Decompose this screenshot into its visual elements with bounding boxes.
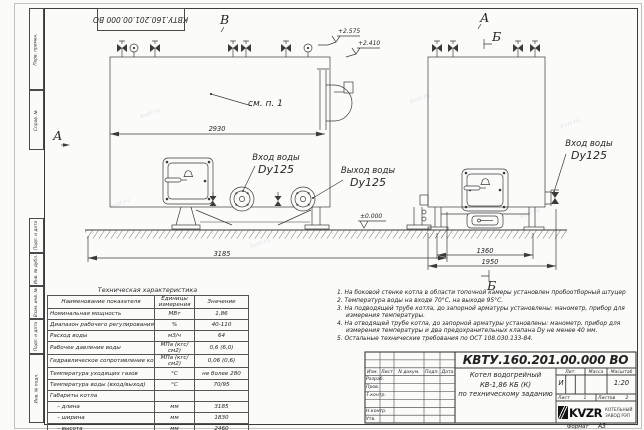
- titleblock-lit-value: И: [556, 379, 566, 387]
- kvzr-logo-icon: [558, 406, 568, 419]
- water-inlet-label-front: Вход воды Dy125: [558, 140, 620, 161]
- dim-3185: 3185: [200, 250, 244, 258]
- company-name: KVZR: [569, 406, 602, 420]
- titleblock-scale-value: 1:20: [607, 379, 636, 387]
- spec-row: Габариты котла: [48, 390, 249, 401]
- spec-header-name: Наименование показателя: [48, 296, 155, 309]
- titleblock-sheet-label: Лист: [558, 395, 574, 402]
- titleblock-header-izm: Изм.: [365, 369, 380, 376]
- drawing-sheet: КВТУ.160.201.00.000 ВО Перв. примен. Спр…: [0, 0, 644, 430]
- titleblock-scale-label: Масштаб: [607, 369, 636, 376]
- view-marker-b-top: Б: [492, 29, 501, 44]
- note-line: 5. Остальные технические требования по О…: [337, 336, 638, 343]
- titleblock-row-nkontr: Н.контр.: [366, 408, 396, 415]
- titleblock-row-razrab: Разраб.: [366, 376, 396, 383]
- spec-row: Температура воды (вход/выход) °С 70/95: [48, 379, 249, 390]
- titleblock-doc-number: КВТУ.160.201.00.000 ВО: [456, 353, 635, 368]
- dim-1950: 1950: [468, 258, 512, 266]
- view-marker-a-top: А: [480, 10, 489, 25]
- company-subtitle: КОТЕЛЬНЫЙ ЗАВОД РЭП: [605, 407, 632, 417]
- water-outlet-label: Выход воды Dy125: [334, 167, 402, 188]
- spec-header-units: Единицы измерения: [155, 296, 195, 309]
- spec-row: – ширина мм 1830: [48, 412, 249, 423]
- titleblock-row-blank: [366, 400, 396, 407]
- spec-row: Гидравлическое сопротивление котла МПа (…: [48, 355, 249, 368]
- titleblock-sheet-value: 1: [576, 395, 594, 402]
- titleblock-row-tkontr: Т.контр.: [366, 392, 396, 399]
- note-line: 4. На отводящей трубе котла, до запорной…: [337, 321, 638, 335]
- see-note-label: см. п. 1: [248, 99, 283, 109]
- view-marker-a-side: А: [53, 128, 62, 143]
- spec-row: Диапазон рабочего регулирования % 40-110: [48, 320, 249, 331]
- spec-header-value: Значение: [195, 296, 249, 309]
- titleblock-header-data: Дата: [440, 369, 455, 376]
- spec-row: Расход воды м3/ч 64: [48, 331, 249, 342]
- spec-row: – высота мм 2460: [48, 423, 249, 430]
- titleblock-row-prov: Пров.: [366, 384, 396, 391]
- elevation-marks: [318, 36, 386, 228]
- titleblock-sheets-value: 2: [620, 395, 634, 402]
- ground-hatch: [85, 230, 567, 239]
- elevation-zero: ±0.000: [360, 213, 382, 220]
- titleblock-row-utv: Утв.: [366, 416, 396, 423]
- spec-row: Рабочее давление воды МПа (кгс/см2) 0,6 …: [48, 342, 249, 355]
- spec-header-row: Наименование показателя Единицы измерени…: [48, 296, 249, 309]
- technical-notes: 1. На боковой стенке котла в области топ…: [337, 290, 638, 345]
- note-line: 1. На боковой стенке котла в области топ…: [337, 290, 638, 297]
- dim-1360: 1360: [463, 247, 507, 255]
- spec-table-title: Техническая характеристика: [47, 286, 248, 295]
- titleblock-header-podp: Подп.: [424, 369, 440, 376]
- titleblock-mass-label: Масса: [585, 369, 607, 376]
- spec-table: Техническая характеристика Наименование …: [47, 286, 248, 430]
- company-logo-block: KVZR КОТЕЛЬНЫЙ ЗАВОД РЭП: [558, 403, 635, 422]
- titleblock-header-dokum: N докум.: [394, 369, 424, 376]
- titleblock-header-list: Лист: [380, 369, 394, 376]
- format-label: Формат: [567, 424, 589, 430]
- titleblock-lit-label: Лит.: [556, 369, 585, 376]
- format-value: А3: [598, 423, 606, 430]
- boiler-side-view: [110, 41, 431, 229]
- spec-row: – длина мм 3185: [48, 401, 249, 412]
- water-inlet-label-side: Вход воды Dy125: [243, 154, 309, 175]
- dim-2930: 2930: [195, 125, 239, 133]
- elevation-2575: +2.575: [338, 28, 360, 35]
- note-line: 2. Температура воды на входе 70°С, на вы…: [337, 298, 638, 305]
- titleblock-sheets-label: Листов: [598, 395, 620, 402]
- boiler-front-view: [420, 41, 559, 230]
- spec-row: Номинальная мощность МВт 1,86: [48, 309, 249, 320]
- note-line: 3. На подводящей трубе котла, до запорно…: [337, 306, 638, 320]
- elevation-2410: +2.410: [358, 40, 380, 47]
- view-marker-v: В: [220, 12, 229, 27]
- spec-row: Температура уходящих газов °С не более 2…: [48, 368, 249, 379]
- titleblock-name: Котел водогрейный КВ-1,86 КБ (К) по техн…: [456, 371, 555, 403]
